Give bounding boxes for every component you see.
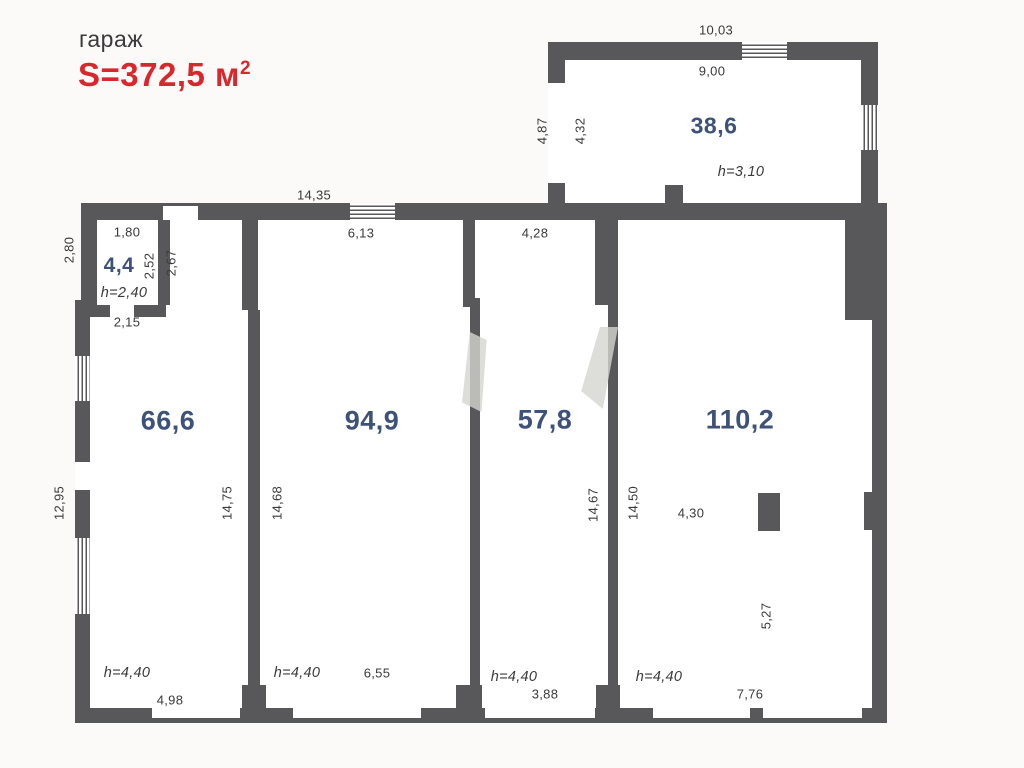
dim-r44-width: 1,80 [114,225,141,240]
total-area-value: S=372,5 м [78,56,240,93]
total-area-sup: 2 [240,58,251,79]
gate-opening [293,708,421,718]
wall [548,42,878,60]
wall-pilaster [864,492,872,530]
dim-r57-depth: 14,67 [586,488,601,522]
room-area-4-4: 4,4 [104,254,135,278]
dim-r110-bottom: 7,76 [737,687,764,702]
pillar [758,493,780,531]
wall [596,685,620,708]
wall [242,220,258,310]
dim-r94-bottom: 6,55 [364,666,391,681]
room-height-66-6: h=4,40 [104,665,151,681]
room-area-38-6: 38,6 [691,113,738,140]
floor-plan: гараж S=372,5 м2 14,35 10,03 9, [0,0,1024,768]
room-area-66-6: 66,6 [141,406,196,437]
room-height-38-6: h=3,10 [718,164,765,180]
dim-r110-to-pillar: 4,30 [678,506,705,521]
dim-annex-top-outer: 10,03 [699,23,733,38]
dim-r44-bottom: 2,15 [114,315,141,330]
annex-left-window-opening [548,83,565,183]
main-building-interior [81,203,887,723]
wall [872,320,887,723]
room-height-94-9: h=4,40 [274,665,321,681]
wall [81,305,110,317]
wall [845,220,887,320]
room-height-4-4: h=2,40 [101,285,148,301]
room-area-94-9: 94,9 [345,406,400,437]
dim-r94-depth: 14,68 [270,486,285,520]
dim-r66-depth: 14,75 [220,486,235,520]
window-symbol [350,203,395,220]
wall [81,203,887,220]
dim-r66-bottom: 4,98 [157,693,184,708]
dim-left-lower: 12,95 [52,486,67,520]
gate-opening [653,708,750,718]
dim-r110-depth: 14,50 [626,486,641,520]
gate-opening [485,708,595,718]
gate-opening [152,708,240,718]
dim-main-top: 14,35 [297,188,331,203]
window-symbol [742,42,787,60]
wall [463,220,475,302]
room-height-110-2: h=4,40 [636,669,683,685]
entry-door-opening [163,206,198,220]
dim-r57-bottom: 3,88 [532,687,559,702]
gate-opening [763,708,862,718]
dim-r94-top: 6,13 [348,226,375,241]
dim-entry-height: 2,67 [164,250,179,277]
dim-r57-top: 4,28 [522,226,549,241]
left-wall-opening [75,462,90,490]
window-symbol [75,538,90,614]
building-type-label: гараж [79,26,143,53]
wall [248,310,260,708]
dim-left-upper: 2,80 [62,237,77,264]
window-symbol [861,105,878,150]
dim-r110-pillar-to-wall: 5,27 [759,603,774,630]
window-symbol [75,356,90,401]
wall [81,203,97,307]
room-height-57-8: h=4,40 [491,669,538,685]
wall [242,685,266,708]
wall [456,685,482,708]
dim-r44-height-inner: 2,52 [142,253,157,280]
dim-annex-left-inner: 4,32 [573,118,588,145]
wall [595,220,618,305]
total-area-label: S=372,5 м2 [78,56,251,94]
dim-annex-left-outer: 4,87 [535,118,550,145]
room-area-57-8: 57,8 [518,405,573,436]
room-area-110-2: 110,2 [706,405,775,436]
dim-annex-top-inner: 9,00 [699,64,726,79]
wall-stub [665,185,683,203]
